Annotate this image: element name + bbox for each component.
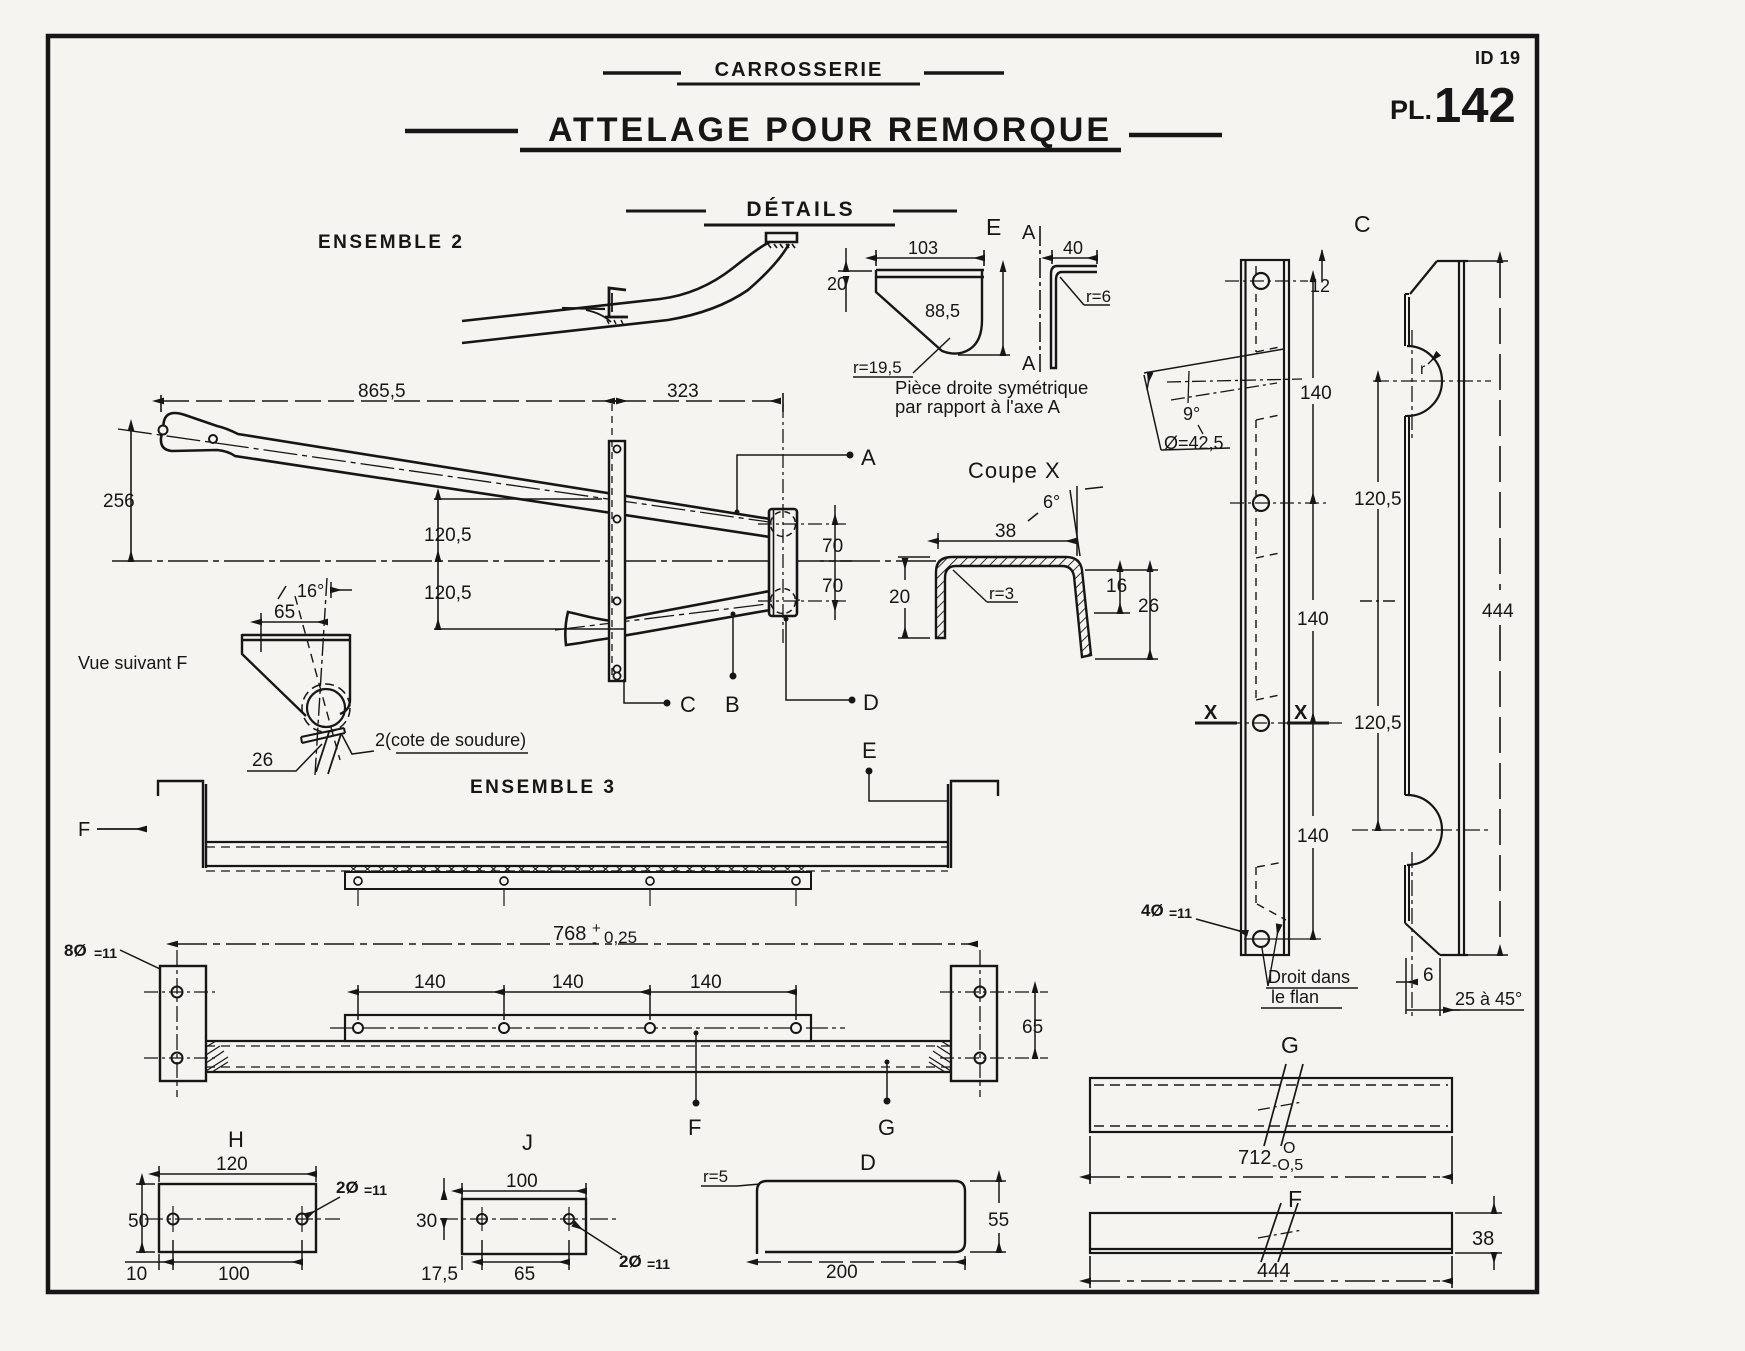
svg-text:26: 26 [1138,596,1159,617]
svg-text:A: A [1022,222,1036,244]
svg-text:r=6: r=6 [1086,287,1111,306]
svg-text:r: r [1420,361,1426,378]
svg-text:100: 100 [218,1264,250,1285]
svg-text:Vue suivant F: Vue suivant F [78,653,187,673]
svg-text:70: 70 [822,536,843,557]
svg-text:A: A [1022,353,1036,375]
svg-text:G: G [1281,1032,1299,1058]
svg-text:323: 323 [667,381,699,402]
svg-text:E: E [862,738,877,763]
svg-text:4Ø: 4Ø [1141,901,1164,920]
svg-text:865,5: 865,5 [358,381,406,402]
svg-text:r=5: r=5 [703,1167,728,1186]
svg-text:6°: 6° [1043,492,1060,512]
svg-text:140: 140 [690,972,722,993]
svg-text:16°: 16° [297,581,324,601]
svg-text:70: 70 [822,576,843,597]
svg-text:=11: =11 [364,1182,387,1198]
svg-text:par rapport à l'axe A: par rapport à l'axe A [895,396,1061,417]
svg-text:F: F [1288,1186,1302,1212]
svg-text:C: C [680,692,696,717]
svg-text:100: 100 [506,1171,538,1192]
svg-text:DÉTAILS: DÉTAILS [746,198,855,221]
svg-text:A: A [861,445,876,470]
svg-text:444: 444 [1482,601,1514,622]
svg-text:ENSEMBLE 2: ENSEMBLE 2 [318,232,464,253]
svg-text:-O,5: -O,5 [1272,1157,1303,1174]
svg-text:50: 50 [128,1211,149,1232]
svg-text:256: 256 [103,491,135,512]
svg-text:D: D [860,1150,876,1175]
svg-text:140: 140 [1297,826,1329,847]
svg-text:140: 140 [414,972,446,993]
svg-text:20: 20 [889,587,910,608]
svg-text:H: H [228,1127,244,1152]
svg-text:X: X [1294,702,1308,724]
svg-text:le flan: le flan [1271,987,1319,1007]
svg-text:120,5: 120,5 [1354,489,1402,510]
svg-text:65: 65 [1022,1017,1043,1038]
svg-text:Pièce droite symétrique: Pièce droite symétrique [895,377,1088,398]
svg-text:30: 30 [416,1211,437,1232]
svg-text:9°: 9° [1183,404,1200,424]
svg-text:r=3: r=3 [989,584,1014,603]
svg-text:55: 55 [988,1210,1009,1231]
svg-text:38: 38 [995,521,1016,542]
svg-text:ID 19: ID 19 [1475,48,1521,68]
svg-text:120,5: 120,5 [424,583,472,604]
svg-text:-: - [592,934,597,951]
svg-text:X: X [1204,702,1218,724]
svg-text:17,5: 17,5 [421,1264,458,1285]
svg-text:PL.: PL. [1390,95,1432,125]
svg-text:444: 444 [1257,1260,1290,1282]
svg-text:2(cote de soudure): 2(cote de soudure) [375,730,526,750]
svg-text:140: 140 [552,972,584,993]
svg-text:ENSEMBLE 3: ENSEMBLE 3 [470,777,616,798]
svg-text:140: 140 [1297,609,1329,630]
svg-text:B: B [725,692,740,717]
svg-text:6: 6 [1423,965,1434,986]
svg-text:F: F [78,819,90,841]
svg-text:40: 40 [1063,238,1083,258]
svg-text:ATTELAGE POUR REMORQUE: ATTELAGE POUR REMORQUE [548,111,1112,149]
svg-text:10: 10 [126,1264,147,1285]
svg-text:26: 26 [252,750,273,771]
svg-text:65: 65 [274,602,295,623]
svg-text:G: G [878,1115,895,1140]
svg-text:200: 200 [826,1262,858,1283]
svg-text:65: 65 [514,1264,535,1285]
svg-text:D: D [863,690,879,715]
svg-text:Droit dans: Droit dans [1268,967,1350,987]
svg-text:C: C [1354,211,1371,237]
svg-text:142: 142 [1434,79,1516,133]
svg-text:768: 768 [553,923,586,945]
svg-text:120,5: 120,5 [1354,713,1402,734]
svg-text:120,5: 120,5 [424,525,472,546]
svg-text:38: 38 [1472,1228,1494,1250]
svg-text:140: 140 [1300,383,1332,404]
svg-text:=11: =11 [647,1256,670,1272]
svg-text:=11: =11 [94,945,117,961]
svg-text:120: 120 [216,1154,248,1175]
svg-text:2Ø: 2Ø [336,1178,359,1197]
svg-text:712: 712 [1238,1147,1271,1169]
svg-text:0,25: 0,25 [604,928,637,947]
svg-text:88,5: 88,5 [925,301,960,321]
svg-text:16: 16 [1106,576,1127,597]
svg-text:2Ø: 2Ø [619,1252,642,1271]
svg-text:Ø=42,5: Ø=42,5 [1164,433,1224,453]
svg-text:103: 103 [908,238,938,258]
svg-text:F: F [688,1115,701,1140]
svg-text:E: E [986,214,1001,240]
svg-text:r=19,5: r=19,5 [853,358,902,377]
svg-text:20: 20 [827,274,847,294]
svg-text:8Ø: 8Ø [64,941,87,960]
svg-text:Coupe X: Coupe X [968,458,1061,483]
svg-text:O: O [1283,1140,1295,1157]
svg-text:=11: =11 [1169,905,1192,921]
svg-text:25 à 45°: 25 à 45° [1455,989,1522,1009]
svg-text:CARROSSERIE: CARROSSERIE [715,59,884,81]
svg-text:J: J [522,1130,533,1155]
